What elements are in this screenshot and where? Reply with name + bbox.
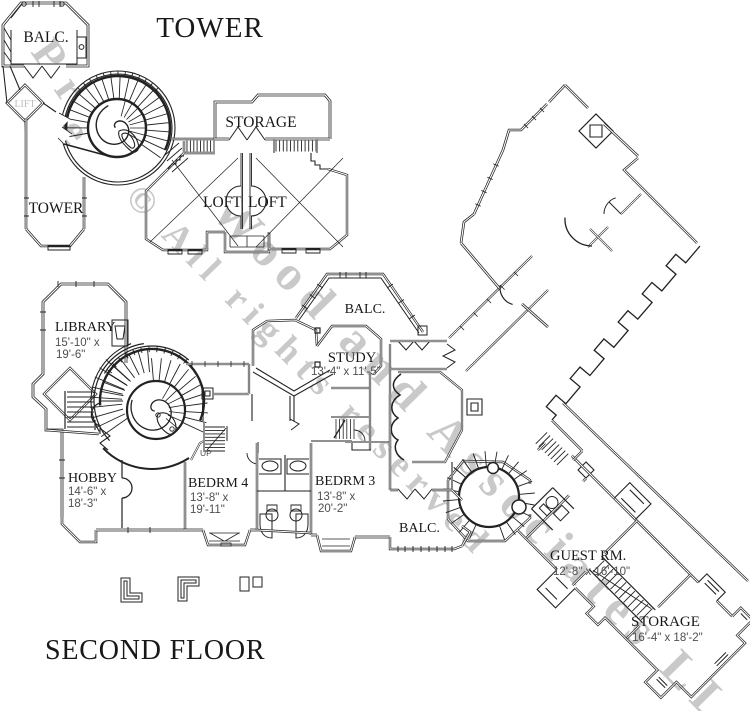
svg-text:16'-4" x 18'-2": 16'-4" x 18'-2" xyxy=(632,632,703,644)
svg-text:SECOND FLOOR: SECOND FLOOR xyxy=(45,635,265,666)
svg-text:18'-3": 18'-3" xyxy=(68,498,97,510)
svg-text:13'-8" x: 13'-8" x xyxy=(317,491,355,503)
svg-text:20'-2": 20'-2" xyxy=(318,503,347,515)
svg-text:LIFT: LIFT xyxy=(14,99,35,110)
svg-text:14'-6" x: 14'-6" x xyxy=(68,486,106,498)
svg-text:BALC.: BALC. xyxy=(345,302,386,317)
svg-text:STUDY: STUDY xyxy=(328,350,377,366)
svg-text:GUEST RM.: GUEST RM. xyxy=(550,548,626,564)
svg-text:BEDRM 3: BEDRM 3 xyxy=(315,474,375,489)
svg-text:UP: UP xyxy=(200,448,212,458)
svg-text:LIBRARY: LIBRARY xyxy=(55,320,116,335)
svg-text:STORAGE: STORAGE xyxy=(225,114,296,131)
svg-text:12'-8" x 16'-10": 12'-8" x 16'-10" xyxy=(553,566,630,578)
svg-text:19'-11": 19'-11" xyxy=(190,504,225,516)
svg-text:BEDRM 4: BEDRM 4 xyxy=(188,476,248,491)
svg-text:15'-10" x: 15'-10" x xyxy=(55,337,100,349)
svg-text:BALC.: BALC. xyxy=(23,29,68,46)
svg-text:LOFT: LOFT xyxy=(248,194,287,211)
svg-text:13'-8" x: 13'-8" x xyxy=(190,492,228,504)
svg-text:STORAGE: STORAGE xyxy=(631,614,700,630)
svg-text:TOWER: TOWER xyxy=(29,200,84,217)
svg-text:LOFT: LOFT xyxy=(203,194,242,211)
svg-text:HOBBY: HOBBY xyxy=(68,471,117,486)
svg-text:19'-6": 19'-6" xyxy=(56,349,85,361)
svg-text:BALC.: BALC. xyxy=(399,521,440,536)
svg-text:TOWER: TOWER xyxy=(156,12,264,44)
